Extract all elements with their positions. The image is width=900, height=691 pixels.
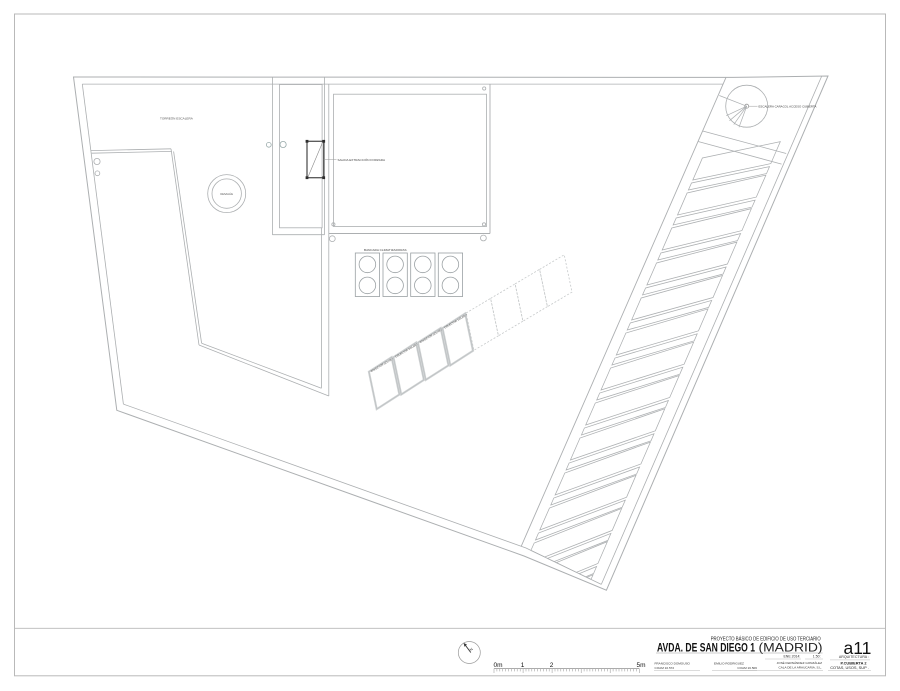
svg-text:1:50:: 1:50: (813, 654, 821, 658)
svg-text:5m: 5m (637, 662, 646, 669)
svg-text:2: 2 (550, 662, 554, 669)
svg-text:0m: 0m (494, 662, 503, 669)
svg-text:COAM 16.506: COAM 16.506 (737, 666, 757, 670)
svg-text:TORREÓN ESCALERA: TORREÓN ESCALERA (160, 115, 194, 120)
svg-text:ENE 2014:: ENE 2014: (783, 654, 800, 658)
svg-text:DESAGÜE: DESAGÜE (220, 192, 233, 196)
svg-text:1: 1 (521, 662, 525, 669)
svg-text:ARQUITECTURA :: ARQUITECTURA : (839, 655, 869, 659)
svg-text:CALA DE LA ARAUCARIA, S.L.: CALA DE LA ARAUCARIA, S.L. (778, 666, 822, 670)
svg-text:ESCALERA CARACOL ACCESO CUBIE: ESCALERA CARACOL ACCESO CUBIERTA (759, 105, 817, 109)
svg-text:COTAS, USOS, SUP .: COTAS, USOS, SUP . (830, 665, 869, 670)
svg-text:AVDA. DE SAN DIEGO 1: AVDA. DE SAN DIEGO 1 (657, 640, 755, 654)
svg-text:(MADRID): (MADRID) (759, 640, 823, 654)
svg-text:COAM 10.572: COAM 10.572 (655, 666, 675, 670)
svg-text:BANCADA CLIMATIZADORAS: BANCADA CLIMATIZADORAS (364, 248, 407, 252)
svg-text:JOSÉ FERNÁNDEZ GONZÁLEZ: JOSÉ FERNÁNDEZ GONZÁLEZ (777, 660, 822, 665)
svg-text:SALIDA EXTRACCIÓN FORZADA: SALIDA EXTRACCIÓN FORZADA (338, 157, 387, 162)
